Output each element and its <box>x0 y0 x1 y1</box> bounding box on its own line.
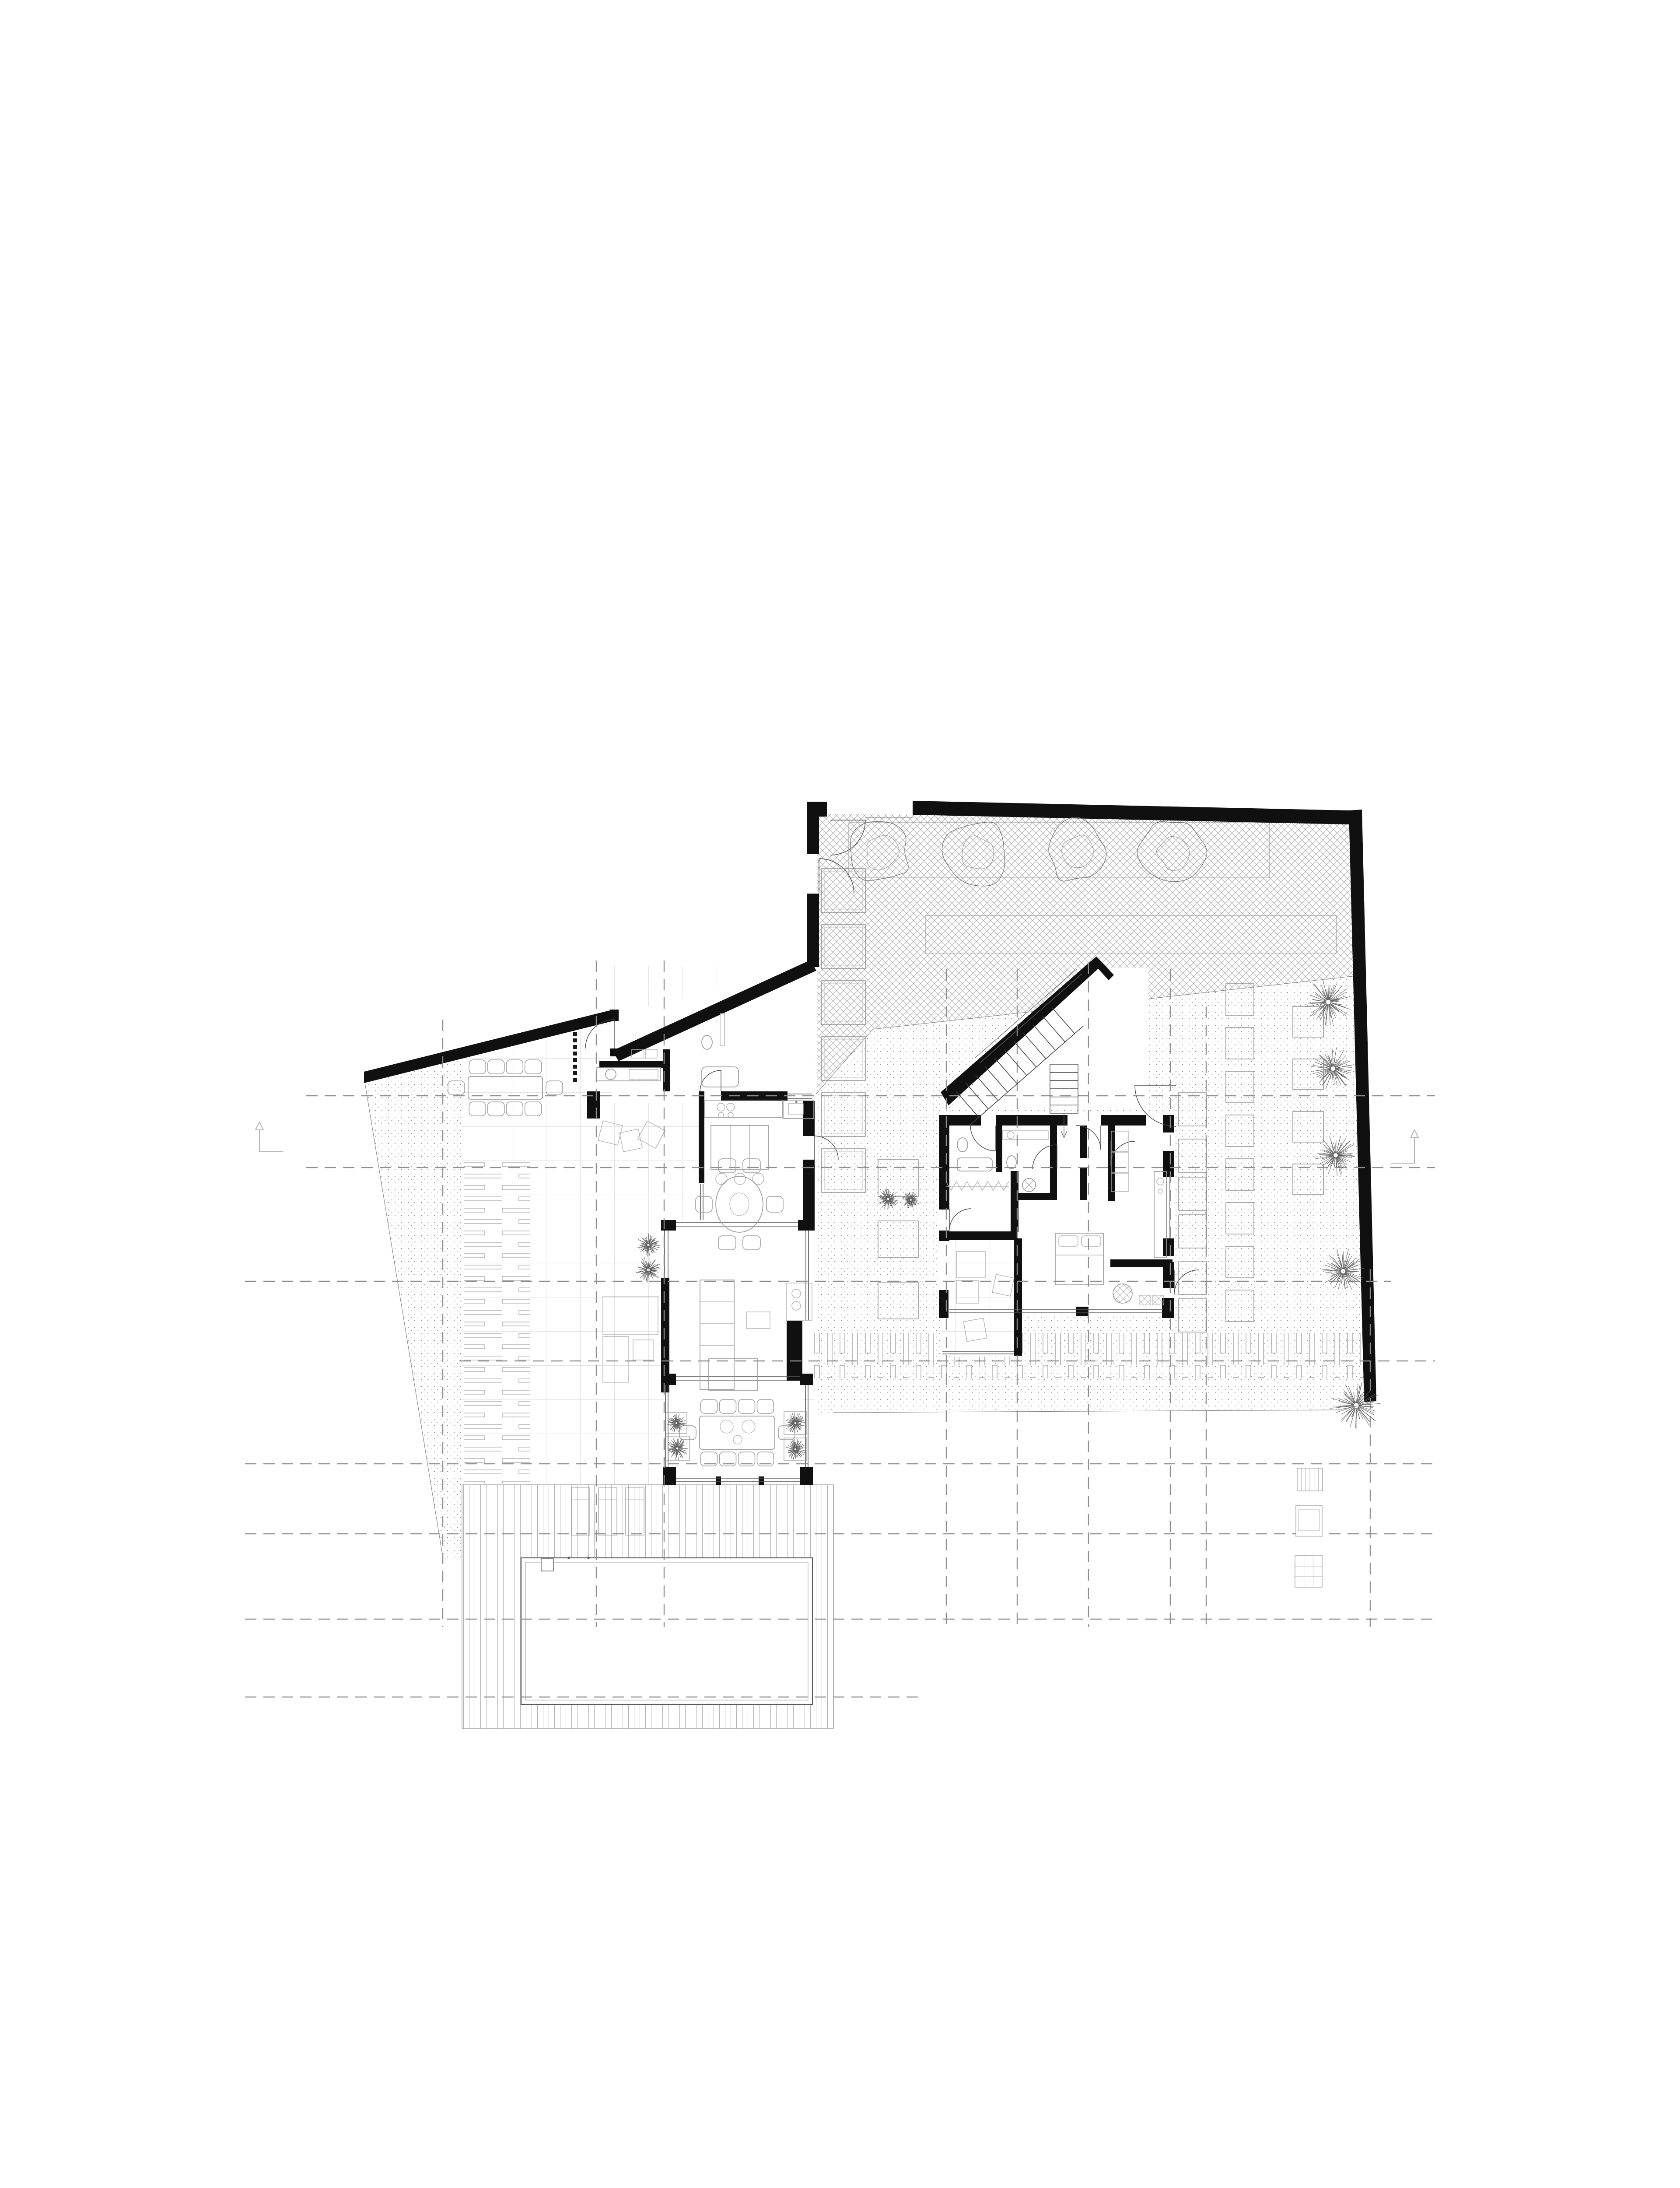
entry-arrow-head <box>1410 1130 1418 1138</box>
corridor-wall <box>1080 1126 1087 1158</box>
bedroom-south-mullion <box>1076 1307 1088 1316</box>
entry-arrow-head <box>255 1122 263 1130</box>
bedroom-wing-east-wall <box>1163 1238 1174 1256</box>
stepping-marker <box>573 1065 577 1069</box>
garden-tree <box>1359 1406 1376 1412</box>
bedroom-wing-west-wall <box>939 1115 949 1210</box>
faucet <box>795 1101 798 1103</box>
patio-pier <box>663 1467 676 1485</box>
pool-fitting <box>587 1557 590 1559</box>
stepping-marker <box>573 1071 577 1075</box>
garden-room-floor <box>941 1239 1014 1356</box>
garden-room-east-wall <box>1014 1238 1022 1356</box>
louver-pergola-band <box>813 1333 1368 1378</box>
entry-arrow <box>259 1130 283 1152</box>
closet-room-south-wall <box>939 1231 1018 1240</box>
bath-east-wall <box>1050 1126 1057 1200</box>
patio-room-floor <box>668 1384 803 1484</box>
kitchen-east-wall <box>803 1160 815 1221</box>
bath-south-wall <box>1011 1193 1057 1200</box>
dining-divider-pier <box>661 1220 676 1231</box>
bath-mat <box>1152 1295 1164 1305</box>
bedroom-wing-east-wall <box>1163 1115 1174 1133</box>
kitchen-west-wall <box>699 1091 704 1183</box>
bedroom-wing-east-wall <box>1163 1262 1174 1288</box>
bedroom-wing-north-wall <box>1101 1115 1146 1126</box>
laundry-wall <box>599 1061 663 1068</box>
bedroom-wing-east-wall <box>1163 1151 1174 1177</box>
shrub <box>648 1233 649 1244</box>
swimming-pool <box>521 1558 812 1704</box>
garden-tree <box>1356 1408 1357 1422</box>
utility-square-border <box>1296 1505 1322 1537</box>
pool-area <box>462 1485 833 1729</box>
garden-tree <box>1343 1273 1343 1290</box>
patio-mullion <box>759 1476 764 1485</box>
corridor-wall <box>1080 1168 1087 1200</box>
patio-pier <box>800 1467 813 1485</box>
floor-plan-drawing: Ground floor plan — villa with pool, ter… <box>0 0 1680 2188</box>
garden-tree <box>1356 1394 1356 1403</box>
stepping-marker <box>573 1045 577 1049</box>
entry-arrow <box>1391 1138 1414 1163</box>
left-garden-stipple <box>364 1052 462 1559</box>
ground-louver-strip <box>464 1158 530 1483</box>
living-south-pier <box>800 1374 813 1385</box>
stepping-marker <box>573 1032 577 1036</box>
entry-jamb <box>610 1010 619 1021</box>
living-south-pier <box>663 1374 676 1385</box>
patio-mullion <box>716 1476 721 1485</box>
terrace-west-wall <box>807 802 819 854</box>
stepping-marker <box>573 1052 577 1055</box>
stepping-marker <box>573 1078 577 1082</box>
floor-plan-page: Ground floor plan — villa with pool, ter… <box>0 0 1680 2188</box>
fireplace-block <box>787 1321 802 1381</box>
bath-divider-wall <box>996 1126 1002 1172</box>
terrace-west-wall <box>807 894 819 967</box>
stepping-marker <box>573 1058 577 1062</box>
pool-ladder <box>541 1559 553 1571</box>
utility-square-grid3 <box>1295 1556 1322 1587</box>
round-shower <box>1113 1284 1132 1303</box>
dining-divider-pier <box>798 1220 815 1231</box>
pool-fitting <box>567 1557 570 1559</box>
garden-room-west-pier <box>939 1290 948 1318</box>
stepping-marker <box>573 1038 577 1042</box>
bath-mat <box>1139 1295 1151 1305</box>
bedroom-wing-north-wall <box>996 1115 1067 1126</box>
